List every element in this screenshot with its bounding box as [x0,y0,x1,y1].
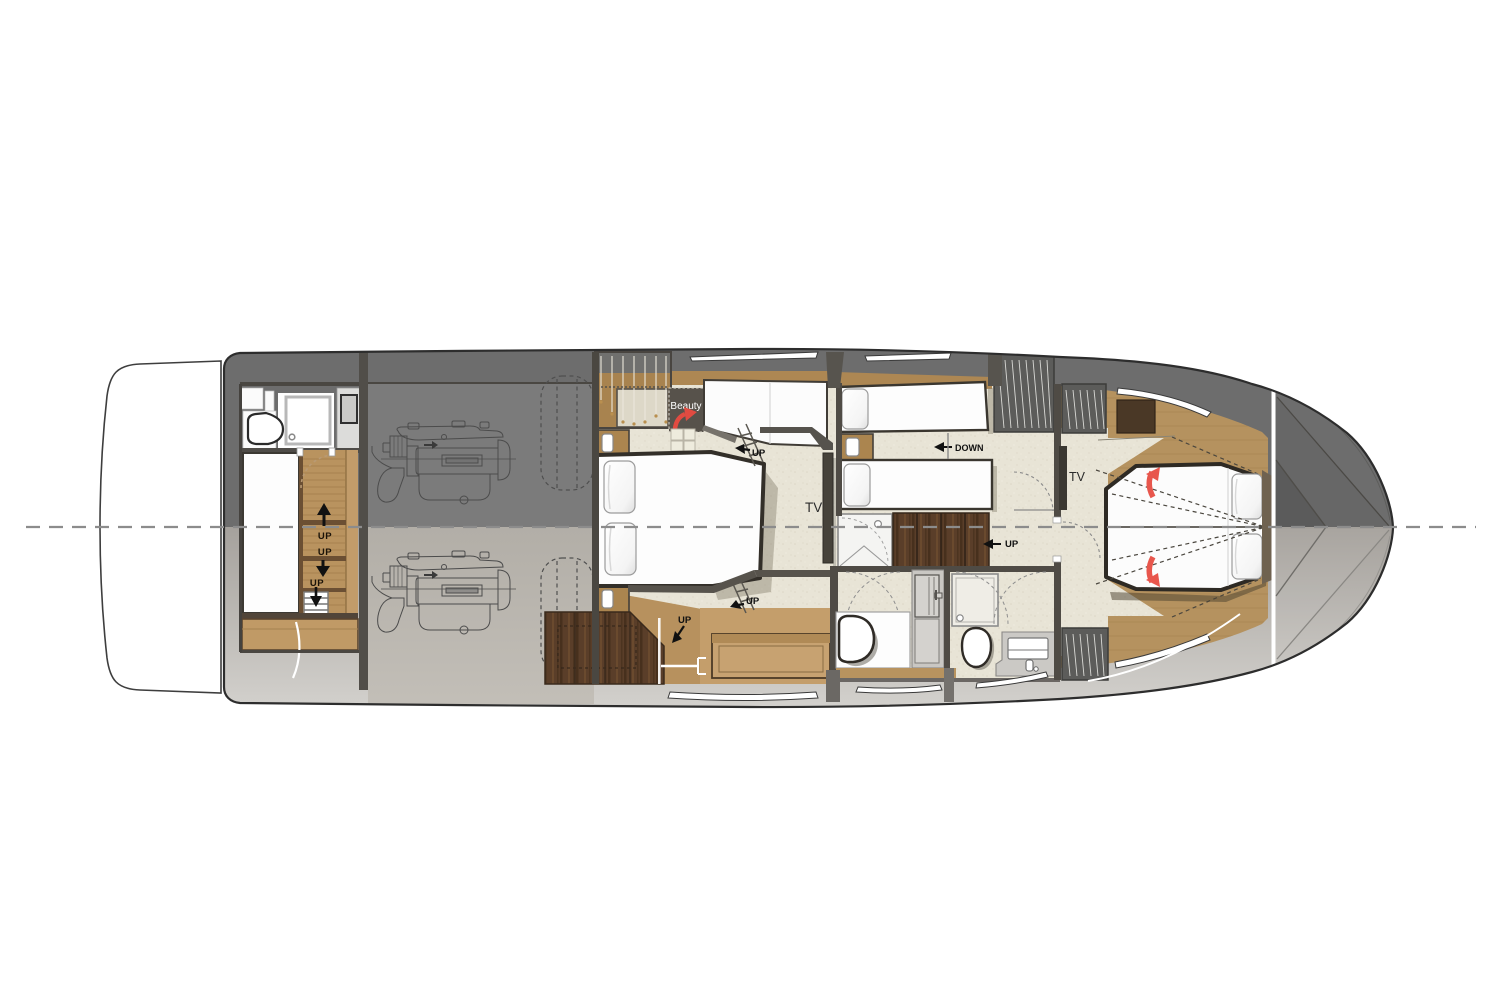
svg-text:UP: UP [318,531,332,542]
svg-text:UP: UP [318,547,332,558]
svg-text:UP: UP [678,615,692,626]
svg-text:UP: UP [1005,539,1019,550]
svg-text:TV: TV [1069,470,1086,484]
svg-text:DOWN: DOWN [955,443,984,453]
svg-text:UP: UP [752,448,766,459]
svg-text:UP: UP [746,596,760,607]
svg-text:TV: TV [805,500,822,515]
